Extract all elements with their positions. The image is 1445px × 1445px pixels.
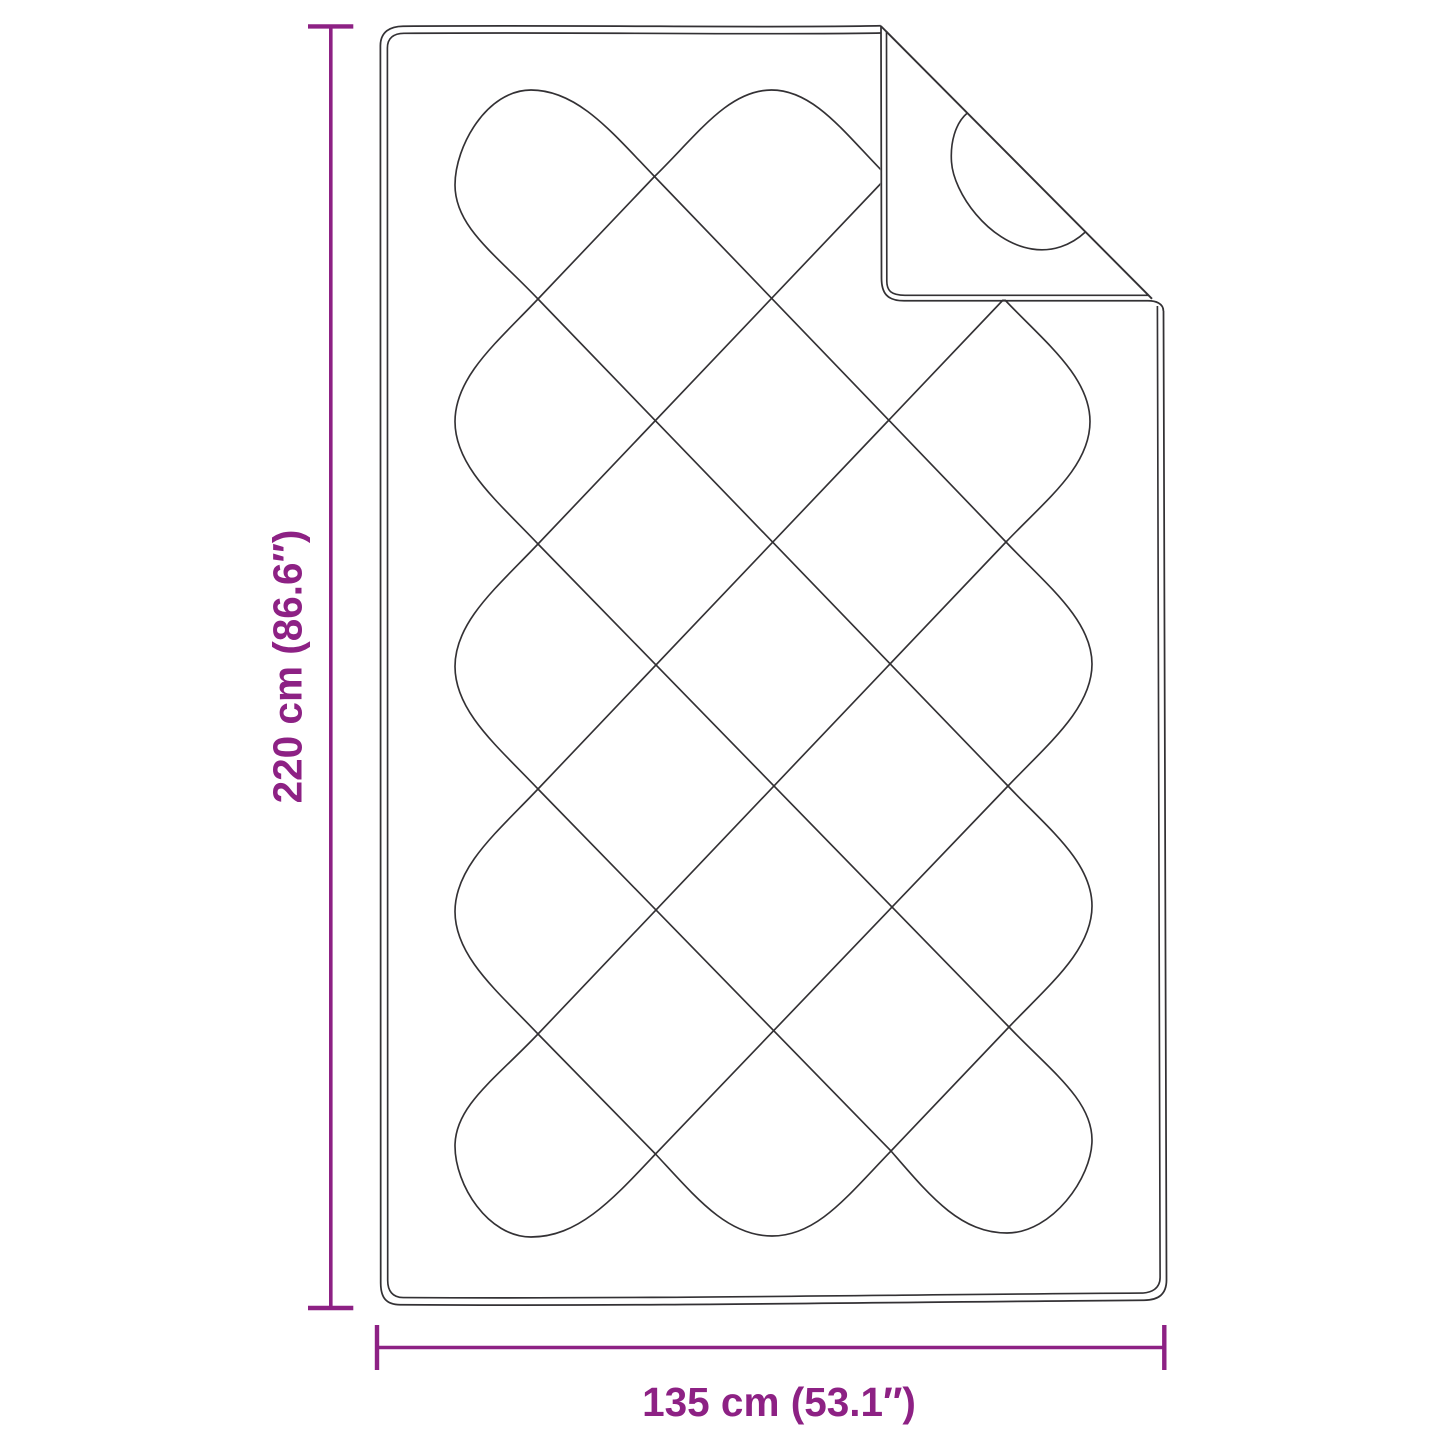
svg-text:220 cm (86.6″): 220 cm (86.6″) (265, 530, 311, 804)
svg-text:135 cm (53.1″): 135 cm (53.1″) (642, 1379, 916, 1425)
